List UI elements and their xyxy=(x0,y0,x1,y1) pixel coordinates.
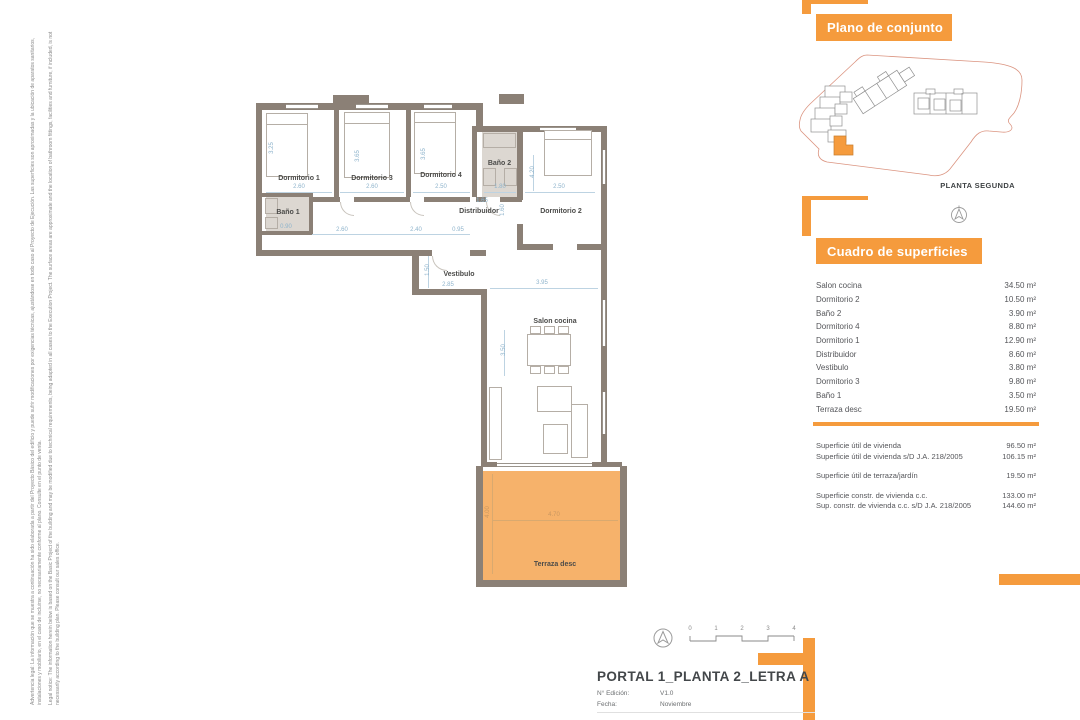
wall xyxy=(412,289,487,295)
chair xyxy=(544,366,555,374)
site-building-right xyxy=(914,89,977,114)
wall xyxy=(256,250,432,256)
door-arc xyxy=(340,202,354,216)
wall xyxy=(517,126,523,200)
surface-row-value: 19.50 m² xyxy=(1006,471,1036,482)
wall xyxy=(592,462,622,467)
room-label-salon: Salon cocina xyxy=(520,318,590,325)
dim-dormitorio4-depth: 3.65 xyxy=(420,140,428,168)
surfaces-summary: Superficie útil de vivienda96.50 m²Super… xyxy=(816,441,1036,521)
scale-tick-3: 3 xyxy=(766,626,770,632)
door-arc xyxy=(410,202,424,216)
surface-row-label: Dormitorio 2 xyxy=(816,295,860,304)
chair xyxy=(544,326,555,334)
room-label-bano1: Baño 1 xyxy=(268,209,308,216)
site-plan-banner-label: Plano de conjunto xyxy=(827,20,943,35)
dim-line xyxy=(484,192,516,193)
wall xyxy=(476,580,627,587)
surface-row-label: Superficie constr. de vivienda c.c. xyxy=(816,491,927,502)
bed-pillow xyxy=(344,112,390,124)
sheet-title: PORTAL 1_PLANTA 2_LETRA A xyxy=(597,669,810,684)
site-plan-map xyxy=(798,52,1030,184)
surface-row-value: 8.80 m² xyxy=(1009,322,1036,331)
dim-line xyxy=(266,192,332,193)
surface-row: Baño 23.90 m² xyxy=(816,306,1036,320)
dim-dormitorio1-width: 2.60 xyxy=(285,183,313,191)
surface-row-value: 144.60 m² xyxy=(1002,501,1036,512)
surface-row-value: 9.80 m² xyxy=(1009,377,1036,386)
scale-tick-0: 0 xyxy=(688,626,692,632)
dim-line xyxy=(413,192,470,193)
dim-line xyxy=(490,288,598,289)
surface-row-label: Superficie útil de terraza/jardín xyxy=(816,471,918,482)
dim-terraza-depth: 4.00 xyxy=(484,498,492,526)
surface-row-value: 19.50 m² xyxy=(1004,405,1036,414)
accent-bracket xyxy=(802,196,811,236)
surface-row: Dormitorio 210.50 m² xyxy=(816,293,1036,307)
surface-row: Vestibulo3.80 m² xyxy=(816,361,1036,375)
surface-row: Salon cocina34.50 m² xyxy=(816,279,1036,293)
wall xyxy=(476,466,483,586)
scale-bar: 0 1 2 3 4 xyxy=(686,622,806,650)
room-label-bano2: Baño 2 xyxy=(483,160,516,167)
pillar xyxy=(499,94,524,104)
surface-row: Terraza desc19.50 m² xyxy=(816,402,1036,416)
surface-row-label: Baño 1 xyxy=(816,391,841,400)
dim-salon-width: 3.95 xyxy=(528,279,556,287)
dim-line xyxy=(492,474,493,574)
surfaces-summary-group: Superficie útil de terraza/jardín19.50 m… xyxy=(816,471,1036,482)
wall xyxy=(523,244,553,250)
wall xyxy=(262,193,312,197)
scale-bar-line xyxy=(690,636,794,641)
surface-row: Superficie útil de vivienda96.50 m² xyxy=(816,441,1036,452)
surface-row: Dormitorio 48.80 m² xyxy=(816,320,1036,334)
wall xyxy=(406,110,411,197)
surface-row: Dormitorio 112.90 m² xyxy=(816,334,1036,348)
wall xyxy=(483,462,497,467)
dim-corridor-1: 2.60 xyxy=(328,226,356,234)
site-highlighted-unit xyxy=(834,136,853,155)
surfaces-table: Salon cocina34.50 m²Dormitorio 210.50 m²… xyxy=(816,279,1036,416)
surface-row: Superficie útil de terraza/jardín19.50 m… xyxy=(816,471,1036,482)
surface-row-value: 3.50 m² xyxy=(1009,391,1036,400)
surface-row-value: 10.50 m² xyxy=(1004,295,1036,304)
dim-dormitorio1-depth: 3.25 xyxy=(268,134,276,162)
dim-line xyxy=(340,192,404,193)
dim-dormitorio3-width: 2.60 xyxy=(358,183,386,191)
wall xyxy=(620,466,627,586)
surface-row: Superficie útil de vivienda s/D J.A. 218… xyxy=(816,452,1036,463)
surfaces-banner: Cuadro de superficies xyxy=(816,238,982,264)
dim-dormitorio3-depth: 3.65 xyxy=(354,142,362,170)
bed-pillow xyxy=(544,130,592,140)
chair xyxy=(530,366,541,374)
dim-line xyxy=(312,234,470,235)
bathtub xyxy=(483,133,516,148)
wall xyxy=(354,197,410,202)
surfaces-summary-group: Superficie constr. de vivienda c.c.133.0… xyxy=(816,491,1036,512)
surface-row-label: Superficie útil de vivienda s/D J.A. 218… xyxy=(816,452,963,463)
sofa xyxy=(537,386,572,412)
surface-row-label: Sup. constr. de vivienda c.c. s/D J.A. 2… xyxy=(816,501,971,512)
window xyxy=(356,104,388,109)
dim-corridor-3: 0.95 xyxy=(444,226,472,234)
dim-dormitorio4-width: 2.50 xyxy=(427,183,455,191)
surface-row-label: Dormitorio 3 xyxy=(816,377,860,386)
chair xyxy=(530,326,541,334)
room-label-dormitorio2: Dormitorio 2 xyxy=(527,208,595,215)
dim-corridor-5: 1.60 xyxy=(499,197,507,223)
wall xyxy=(577,244,607,250)
north-compass-icon xyxy=(949,204,969,224)
edition-label: N° Edición: xyxy=(597,690,629,697)
wall xyxy=(424,197,470,202)
surface-row-label: Distribuidor xyxy=(816,350,856,359)
edition-value: V1.0 xyxy=(660,690,673,697)
dining-table xyxy=(527,334,571,366)
dim-line xyxy=(492,520,618,521)
surface-row-value: 34.50 m² xyxy=(1004,281,1036,290)
surface-row-value: 96.50 m² xyxy=(1006,441,1036,452)
surface-row-label: Dormitorio 4 xyxy=(816,322,860,331)
dim-dormitorio2-width: 2.50 xyxy=(545,183,573,191)
surface-row-value: 12.90 m² xyxy=(1004,336,1036,345)
surface-row-value: 3.80 m² xyxy=(1009,363,1036,372)
date-value: Noviembre xyxy=(660,701,691,708)
dim-corridor-2: 2.40 xyxy=(402,226,430,234)
room-label-dormitorio1: Dormitorio 1 xyxy=(267,175,331,182)
room-label-vestibulo: Vestibulo xyxy=(432,271,486,278)
scale-tick-4: 4 xyxy=(792,626,796,632)
surface-row-label: Terraza desc xyxy=(816,405,862,414)
room-label-dormitorio3: Dormitorio 3 xyxy=(340,175,404,182)
surface-row-label: Vestibulo xyxy=(816,363,848,372)
wall xyxy=(312,197,340,202)
pillar xyxy=(333,95,369,104)
site-building-left xyxy=(811,86,852,142)
dim-vestibulo-width: 2.85 xyxy=(434,281,462,289)
north-compass-icon xyxy=(652,627,674,649)
surface-row: Sup. constr. de vivienda c.c. s/D J.A. 2… xyxy=(816,501,1036,512)
dim-bano2-width: 1.80 xyxy=(486,183,514,191)
accent-bracket xyxy=(802,0,868,4)
wall xyxy=(262,231,313,235)
site-building-middle xyxy=(851,60,917,114)
site-plan-banner: Plano de conjunto xyxy=(816,14,952,41)
surface-row: Dormitorio 39.80 m² xyxy=(816,375,1036,389)
dim-dormitorio2-depth: 4.20 xyxy=(529,158,537,186)
title-block-divider xyxy=(597,712,815,713)
window xyxy=(602,300,606,346)
wall xyxy=(481,295,487,466)
wall xyxy=(472,126,477,197)
surface-row: Baño 13.50 m² xyxy=(816,389,1036,403)
surface-row-label: Dormitorio 1 xyxy=(816,336,860,345)
surface-row-value: 8.60 m² xyxy=(1009,350,1036,359)
window xyxy=(424,104,452,109)
surface-row-value: 106.15 m² xyxy=(1002,452,1036,463)
sliding-door xyxy=(497,463,592,467)
surfaces-divider xyxy=(813,422,1039,426)
wall xyxy=(309,193,313,235)
chair xyxy=(558,366,569,374)
accent-bracket xyxy=(802,196,868,200)
side-unit xyxy=(543,424,568,454)
scale-tick-1: 1 xyxy=(714,626,718,632)
dim-vestibulo-depth: 1.50 xyxy=(424,256,432,284)
dim-corridor-4: 1.65 xyxy=(470,197,494,205)
accent-bar-bottom xyxy=(758,653,804,665)
accent-bar-right xyxy=(999,574,1080,585)
chair xyxy=(558,326,569,334)
wall xyxy=(470,250,486,256)
wall xyxy=(334,110,339,197)
dim-salon-depth: 3.50 xyxy=(500,336,508,364)
window xyxy=(602,150,606,184)
surface-row-label: Superficie útil de vivienda xyxy=(816,441,901,452)
surface-row: Distribuidor8.60 m² xyxy=(816,347,1036,361)
dim-line xyxy=(525,192,595,193)
bed-pillow xyxy=(266,113,308,125)
scale-tick-2: 2 xyxy=(740,626,744,632)
surface-row-value: 3.90 m² xyxy=(1009,309,1036,318)
floor-plan: Dormitorio 1 Dormitorio 3 Dormitorio 4 B… xyxy=(0,0,720,720)
surface-row-value: 133.00 m² xyxy=(1002,491,1036,502)
kitchen-counter xyxy=(571,404,588,458)
room-label-dormitorio4: Dormitorio 4 xyxy=(412,172,470,179)
window xyxy=(602,392,606,434)
door-arc xyxy=(432,256,447,271)
date-label: Fecha: xyxy=(597,701,617,708)
plan-sheet: Advertencia legal: La información que se… xyxy=(0,0,1080,720)
surface-row-label: Baño 2 xyxy=(816,309,841,318)
room-label-terraza: Terraza desc xyxy=(520,561,590,568)
window xyxy=(286,104,318,109)
dim-terraza-width: 4.70 xyxy=(540,511,568,519)
site-plan-caption: PLANTA SEGUNDA xyxy=(930,181,1015,190)
dim-bano1-width: 0.90 xyxy=(274,223,298,231)
surface-row: Superficie constr. de vivienda c.c.133.0… xyxy=(816,491,1036,502)
surfaces-summary-group: Superficie útil de vivienda96.50 m²Super… xyxy=(816,441,1036,462)
surface-row-label: Salon cocina xyxy=(816,281,862,290)
bed-pillow xyxy=(414,112,456,123)
tv-cabinet xyxy=(489,387,502,460)
surfaces-banner-label: Cuadro de superficies xyxy=(827,244,968,259)
